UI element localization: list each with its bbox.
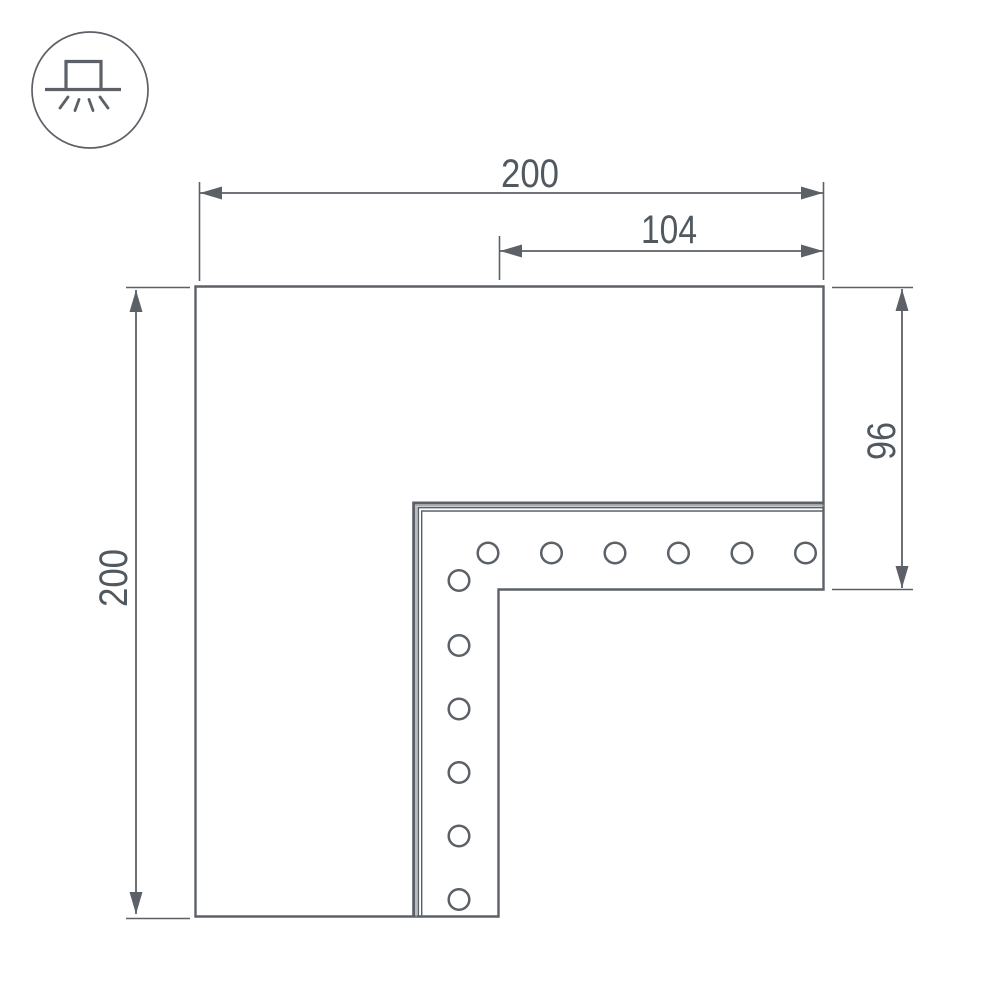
arrow-down-icon xyxy=(130,892,143,914)
technical-drawing: 200 104 200 96 xyxy=(0,0,1000,1000)
dimension-overall-width: 200 xyxy=(200,152,824,281)
fixture-box xyxy=(66,62,101,90)
dimension-label-overall-height: 200 xyxy=(92,549,136,607)
light-rays-icon xyxy=(60,97,108,111)
arrow-left-icon xyxy=(500,245,522,258)
arrow-up-icon xyxy=(896,289,909,311)
dimension-overall-height: 200 xyxy=(92,288,190,919)
dimension-arm-inner-width: 104 xyxy=(500,208,824,280)
dimension-arm-height: 96 xyxy=(832,288,913,590)
arrow-up-icon xyxy=(130,290,143,312)
dimension-label-overall-width: 200 xyxy=(501,152,559,196)
profile-outline xyxy=(196,287,824,917)
arrow-down-icon xyxy=(896,566,909,588)
arrow-right-icon xyxy=(801,187,823,200)
dimension-label-arm-inner-width: 104 xyxy=(641,208,697,252)
surface-mounted-light-icon xyxy=(32,32,148,148)
arrow-right-icon xyxy=(801,245,823,258)
drawing-canvas: 200 104 200 96 xyxy=(0,0,1000,1000)
dimension-label-arm-height: 96 xyxy=(860,422,904,460)
mounting-holes xyxy=(449,543,816,910)
arrow-left-icon xyxy=(200,187,222,200)
